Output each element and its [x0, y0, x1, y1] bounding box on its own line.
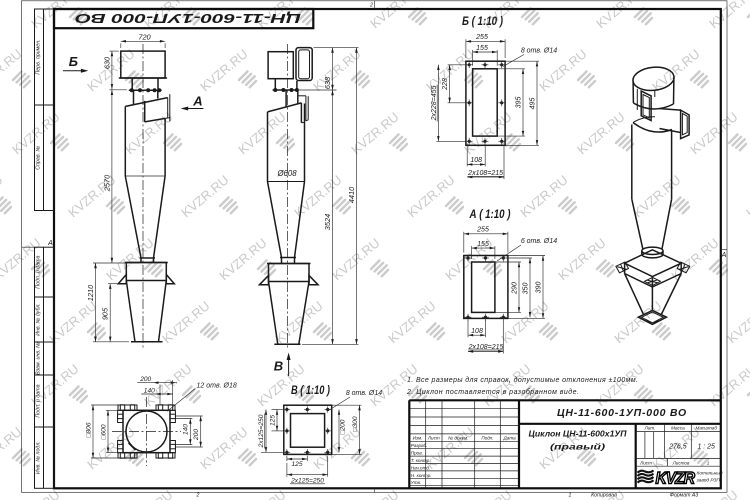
svg-text:108: 108	[470, 157, 482, 164]
svg-text:200: 200	[139, 376, 151, 383]
svg-text:KVZR.RU: KVZR.RU	[461, 109, 514, 157]
svg-text:395: 395	[515, 97, 522, 109]
svg-text:Разраб.: Разраб.	[411, 443, 428, 448]
svg-text:В: В	[274, 359, 283, 374]
svg-text:Инв. № дубл.: Инв. № дубл.	[36, 303, 42, 336]
svg-text:Подп. и дата: Подп. и дата	[36, 384, 42, 417]
svg-text:Перв. примен.: Перв. примен.	[36, 39, 42, 74]
svg-text:8 отв. Ø14: 8 отв. Ø14	[346, 390, 382, 397]
svg-text:2х108=215: 2х108=215	[467, 170, 503, 177]
svg-text:Б ( 1:10 ): Б ( 1:10 )	[462, 14, 503, 28]
svg-text:720: 720	[138, 33, 151, 42]
svg-text:№ докум.: № докум.	[448, 436, 468, 441]
svg-text:140: 140	[144, 387, 155, 394]
svg-text:108: 108	[471, 328, 483, 335]
svg-text:1. Все размеры для справок, до: 1. Все размеры для справок, допустимые о…	[407, 376, 638, 384]
svg-text:1 : 25: 1 : 25	[697, 444, 715, 451]
svg-text:Масса: Масса	[671, 426, 685, 431]
svg-text:Б: Б	[69, 54, 78, 69]
svg-text:4410: 4410	[347, 186, 356, 203]
svg-text:KVZR: KVZR	[656, 468, 696, 487]
svg-text:Пров.: Пров.	[411, 451, 423, 456]
svg-text:255: 255	[475, 34, 488, 41]
svg-text:ЦН-11-600-1УП-000 ВО: ЦН-11-600-1УП-000 ВО	[557, 407, 687, 419]
svg-text:KVZR.RU: KVZR.RU	[216, 235, 269, 283]
svg-text:2: 2	[196, 493, 200, 499]
svg-text:2х125=250: 2х125=250	[258, 414, 265, 448]
svg-text:Утв.: Утв.	[411, 480, 421, 485]
svg-text:завод РЗП: завод РЗП	[696, 478, 721, 484]
svg-text:Циклон ЦН-11-600х1УП: Циклон ЦН-11-600х1УП	[529, 429, 628, 439]
svg-text:Изм.: Изм.	[413, 436, 423, 441]
svg-text:1: 1	[707, 460, 710, 465]
svg-text:125: 125	[269, 415, 276, 426]
svg-text:KVZR.RU: KVZR.RU	[367, 361, 420, 409]
svg-text:255: 255	[476, 226, 489, 233]
svg-text:290: 290	[511, 282, 518, 295]
svg-text:200: 200	[193, 429, 200, 441]
svg-text:(правый): (правый)	[550, 442, 605, 452]
svg-text:KVZR.RU: KVZR.RU	[743, 172, 750, 220]
svg-text:KVZR.RU: KVZR.RU	[329, 235, 382, 283]
svg-text:Т. контр.: Т. контр.	[411, 458, 431, 463]
svg-text:KVZR.RU: KVZR.RU	[0, 46, 25, 94]
svg-text:125: 125	[291, 461, 302, 468]
svg-text:Листов: Листов	[672, 460, 690, 465]
svg-text:KVZR.RU: KVZR.RU	[385, 298, 438, 346]
svg-text:228: 228	[442, 78, 449, 91]
svg-text:KVZR.RU: KVZR.RU	[593, 0, 646, 31]
svg-text:276,5: 276,5	[668, 444, 687, 451]
svg-text:KVZR.RU: KVZR.RU	[367, 0, 420, 31]
svg-text:Взам. инв. №: Взам. инв. №	[36, 342, 42, 375]
svg-text:KVZR.RU: KVZR.RU	[574, 109, 627, 157]
svg-text:KVZR.RU: KVZR.RU	[724, 298, 750, 346]
svg-text:Формат А3: Формат А3	[670, 493, 698, 499]
svg-text:А: А	[47, 240, 53, 247]
svg-text:Подп.: Подп.	[481, 436, 493, 441]
svg-text:2х125=250: 2х125=250	[290, 478, 324, 485]
svg-text:А: А	[192, 94, 202, 109]
svg-text:В ( 1:10 ): В ( 1:10 )	[291, 383, 330, 397]
svg-text:Дата: Дата	[503, 436, 517, 441]
svg-text:Справ. №: Справ. №	[36, 145, 42, 169]
svg-text:155: 155	[477, 241, 489, 248]
svg-text:KVZR.RU: KVZR.RU	[0, 424, 25, 472]
svg-text:KVZR.RU: KVZR.RU	[291, 172, 344, 220]
svg-text:2х228=455: 2х228=455	[431, 85, 438, 121]
svg-text:2: 2	[369, 3, 373, 9]
svg-text:А: А	[721, 252, 727, 259]
svg-text:Подп. и дата: Подп. и дата	[36, 255, 42, 288]
svg-text:2. Циклон поставляется в разоб: 2. Циклон поставляется в разобранном вид…	[406, 388, 579, 396]
svg-text:KVZR.RU: KVZR.RU	[310, 46, 363, 94]
svg-text:155: 155	[476, 45, 488, 52]
svg-text:KVZR.RU: KVZR.RU	[706, 361, 750, 409]
svg-text:630: 630	[102, 56, 111, 69]
svg-text:Лист: Лист	[427, 436, 440, 441]
svg-text:Копировал: Копировал	[591, 493, 617, 499]
svg-text:KVZR.RU: KVZR.RU	[593, 361, 646, 409]
svg-text:А ( 1:10 ): А ( 1:10 )	[469, 207, 511, 221]
svg-text:KVZR.RU: KVZR.RU	[159, 298, 212, 346]
svg-text:12 отв. Ø18: 12 отв. Ø18	[197, 382, 237, 389]
svg-text:KVZR.RU: KVZR.RU	[706, 0, 750, 31]
svg-text:Котельный: Котельный	[697, 470, 723, 477]
svg-text:Лист: Лист	[639, 460, 652, 465]
svg-text:6 отв. Ø14: 6 отв. Ø14	[521, 238, 557, 245]
svg-text:KVZR.RU: KVZR.RU	[84, 46, 137, 94]
svg-text:350: 350	[522, 283, 529, 295]
svg-text:Лит.: Лит.	[644, 426, 656, 431]
svg-text:□300: □300	[352, 416, 359, 431]
svg-text:KVZR.RU: KVZR.RU	[630, 172, 683, 220]
svg-text:KVZR.RU: KVZR.RU	[178, 172, 231, 220]
svg-text:Инв. № подл.: Инв. № подл.	[36, 441, 42, 474]
svg-text:Н. контр.: Н. контр.	[411, 473, 432, 478]
svg-text:140: 140	[183, 424, 190, 435]
svg-text:□200: □200	[340, 419, 347, 434]
svg-text:638: 638	[323, 76, 332, 89]
svg-text:1: 1	[569, 493, 572, 499]
svg-text:Масштаб: Масштаб	[695, 426, 717, 431]
svg-text:□600: □600	[100, 424, 107, 439]
svg-text:KVZR.RU: KVZR.RU	[649, 46, 702, 94]
svg-text:□806: □806	[85, 422, 92, 437]
svg-text:3524: 3524	[323, 214, 332, 230]
svg-text:390: 390	[535, 282, 542, 294]
svg-text:KVZR.RU: KVZR.RU	[480, 361, 533, 409]
svg-text:KVZR.RU: KVZR.RU	[197, 46, 250, 94]
svg-text:2570: 2570	[102, 174, 111, 192]
svg-text:KVZR.RU: KVZR.RU	[197, 424, 250, 472]
svg-text:ЦН-11-600-1УП-000 ВО: ЦН-11-600-1УП-000 ВО	[75, 11, 301, 26]
svg-text:Ø608: Ø608	[276, 169, 297, 178]
svg-text:KVZR.RU: KVZR.RU	[498, 298, 551, 346]
svg-text:8 отв. Ø14: 8 отв. Ø14	[521, 48, 557, 55]
svg-text:KVZR.RU: KVZR.RU	[555, 235, 608, 283]
svg-text:KVZR.RU: KVZR.RU	[141, 361, 194, 409]
svg-text:1210: 1210	[86, 284, 95, 301]
svg-text:KVZR.RU: KVZR.RU	[517, 172, 570, 220]
svg-text:KVZR.RU: KVZR.RU	[235, 109, 288, 157]
svg-text:KVZR.RU: KVZR.RU	[423, 424, 476, 472]
svg-text:905: 905	[101, 307, 110, 320]
svg-text:495: 495	[529, 98, 536, 110]
svg-text:KVZR.RU: KVZR.RU	[687, 109, 740, 157]
svg-text:KVZR.RU: KVZR.RU	[404, 172, 457, 220]
svg-text:Нач.отд.: Нач.отд.	[411, 465, 430, 470]
